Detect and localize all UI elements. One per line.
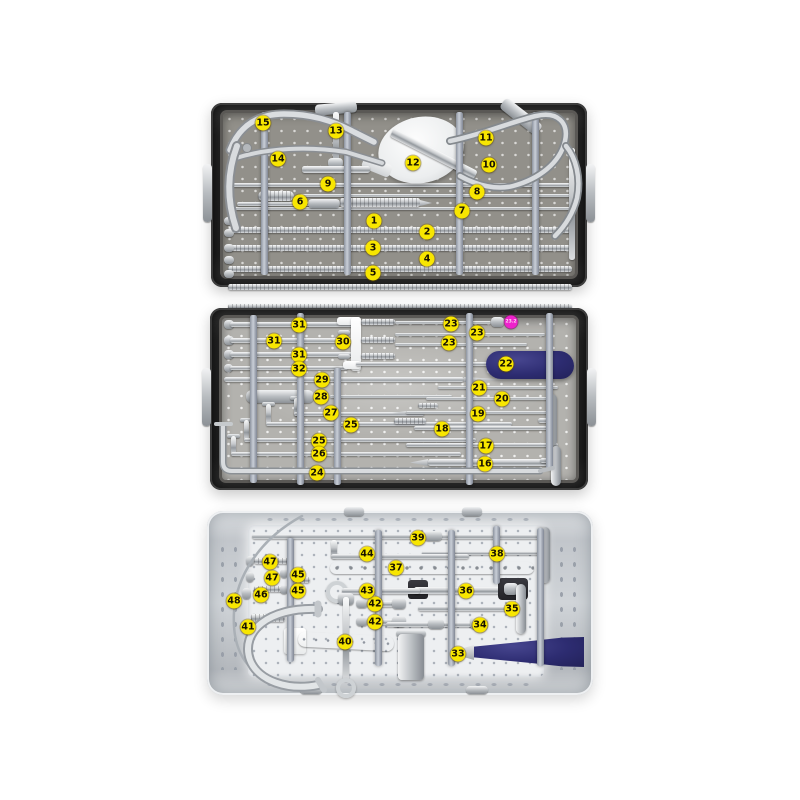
number-badge-10: 10 <box>482 158 497 173</box>
number-badge-47: 47 <box>263 555 278 570</box>
number-badge-39: 39 <box>411 531 426 546</box>
number-badge-23: 23 <box>442 336 457 351</box>
number-badge-6: 6 <box>293 195 308 210</box>
instrument-set-photo: 1234567891011121314151617181920212223232… <box>0 0 800 800</box>
number-badge-23: 23 <box>444 317 459 332</box>
number-badge-31: 31 <box>267 334 282 349</box>
number-badge-18: 18 <box>435 422 450 437</box>
number-badge-25: 25 <box>344 418 359 433</box>
number-badge-2: 2 <box>420 225 435 240</box>
number-badge-23: 23 <box>470 326 485 341</box>
number-badge-16: 16 <box>478 457 493 472</box>
number-badge-41: 41 <box>241 620 256 635</box>
number-badge-13: 13 <box>329 124 344 139</box>
number-badge-30: 30 <box>336 335 351 350</box>
number-badge-28: 28 <box>314 390 329 405</box>
number-badge-27: 27 <box>324 406 339 421</box>
number-badge-8: 8 <box>470 185 485 200</box>
number-badge-20: 20 <box>495 392 510 407</box>
number-badge-31: 31 <box>292 318 307 333</box>
number-badge-17: 17 <box>479 439 494 454</box>
number-badge-22: 22 <box>499 357 514 372</box>
highlight-badge: 23.2 <box>505 316 518 329</box>
number-badge-36: 36 <box>459 584 474 599</box>
number-badge-35: 35 <box>505 602 520 617</box>
number-badge-40: 40 <box>338 635 353 650</box>
number-badge-34: 34 <box>473 618 488 633</box>
number-badge-3: 3 <box>366 241 381 256</box>
number-badge-48: 48 <box>227 594 242 609</box>
number-badge-26: 26 <box>312 447 327 462</box>
number-badge-43: 43 <box>360 584 375 599</box>
number-badge-38: 38 <box>490 547 505 562</box>
number-badge-45: 45 <box>291 584 306 599</box>
number-badge-46: 46 <box>254 588 269 603</box>
number-badge-21: 21 <box>472 381 487 396</box>
number-badge-11: 11 <box>479 131 494 146</box>
number-badge-44: 44 <box>360 547 375 562</box>
number-badge-1: 1 <box>367 214 382 229</box>
number-badge-42: 42 <box>368 597 383 612</box>
number-badge-5: 5 <box>366 266 381 281</box>
number-badge-31: 31 <box>292 348 307 363</box>
number-badge-32: 32 <box>292 362 307 377</box>
number-badge-7: 7 <box>455 204 470 219</box>
number-badge-9: 9 <box>321 177 336 192</box>
number-badge-33: 33 <box>451 647 466 662</box>
number-badge-37: 37 <box>389 561 404 576</box>
number-annotations: 1234567891011121314151617181920212223232… <box>0 0 800 800</box>
number-badge-12: 12 <box>406 156 421 171</box>
number-badge-42: 42 <box>368 615 383 630</box>
number-badge-24: 24 <box>310 466 325 481</box>
number-badge-47: 47 <box>265 571 280 586</box>
number-badge-19: 19 <box>471 407 486 422</box>
number-badge-45: 45 <box>291 568 306 583</box>
number-badge-15: 15 <box>256 116 271 131</box>
number-badge-4: 4 <box>420 252 435 267</box>
number-badge-29: 29 <box>315 373 330 388</box>
number-badge-14: 14 <box>271 152 286 167</box>
